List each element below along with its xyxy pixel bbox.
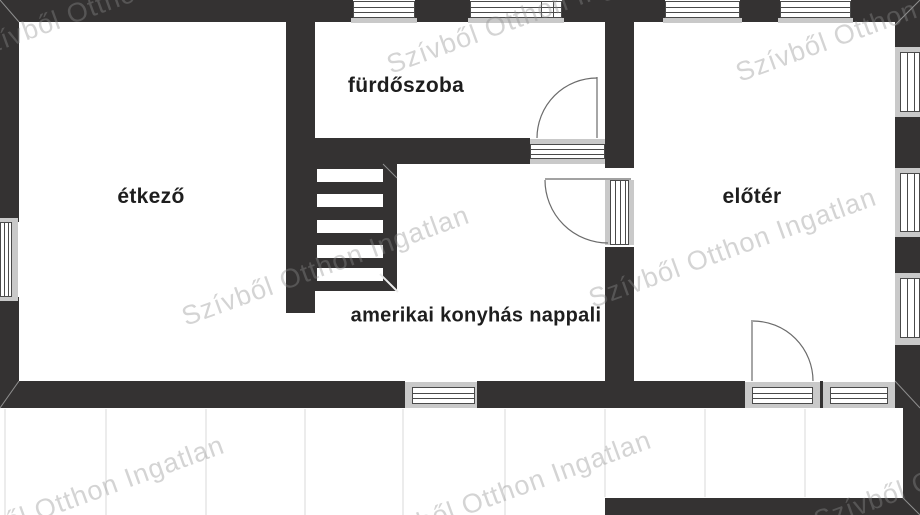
room-label-nappali: amerikai konyhás nappali — [351, 305, 602, 328]
wall-etkezo-right — [286, 22, 315, 313]
wall-right — [895, 22, 920, 47]
wall-divider-lower — [605, 247, 634, 381]
wall-right — [895, 237, 920, 273]
window-sill — [895, 112, 920, 117]
window — [412, 387, 475, 404]
window-sill — [351, 18, 417, 23]
wall-furdoszoba-bottom — [286, 138, 530, 164]
entry-door-sill — [752, 387, 813, 404]
room-label-eloter: előtér — [723, 185, 782, 209]
window — [665, 1, 740, 18]
window — [900, 278, 920, 338]
wall-bottom — [477, 381, 745, 408]
wall-bottom — [0, 381, 405, 408]
room-label-furdoszoba: fürdőszoba — [348, 74, 464, 98]
floor-plan: fürdőszoba étkező előtér amerikai konyhá… — [0, 0, 920, 515]
stair-tread — [317, 220, 383, 233]
wall-right — [895, 117, 920, 168]
window — [0, 222, 12, 297]
window — [780, 1, 851, 18]
wall-left — [0, 297, 19, 381]
door-threshold — [629, 180, 634, 245]
wall-divider-upper — [605, 22, 634, 168]
wall-left — [0, 22, 19, 222]
window — [900, 52, 920, 112]
window-sill — [895, 338, 920, 345]
door-threshold — [530, 159, 605, 164]
bathroom-door-sill — [530, 144, 605, 159]
wall-top — [851, 0, 920, 22]
wall-top — [740, 0, 780, 22]
wall-top — [562, 0, 665, 22]
wall-right — [895, 345, 920, 381]
stair-tread — [317, 194, 383, 207]
wall-top — [0, 0, 353, 22]
window — [900, 173, 920, 232]
stair-tread — [317, 268, 383, 281]
window-sill — [778, 18, 853, 23]
stair-tread — [317, 169, 383, 182]
room-label-etkezo: étkező — [117, 185, 184, 209]
window-sill — [895, 232, 920, 237]
wall-top — [415, 0, 470, 22]
window — [830, 387, 888, 404]
window — [470, 1, 562, 18]
opening-etkezo-nappali — [286, 313, 315, 381]
wall-bottom-bar — [605, 498, 920, 515]
window-sill — [663, 18, 742, 23]
window-sill — [0, 297, 18, 301]
interior-door-sill — [610, 180, 629, 245]
window-sill — [12, 222, 18, 297]
stair-tread — [317, 245, 383, 258]
wall-bottom — [895, 381, 920, 408]
window-sill — [468, 18, 564, 23]
window — [353, 1, 415, 18]
